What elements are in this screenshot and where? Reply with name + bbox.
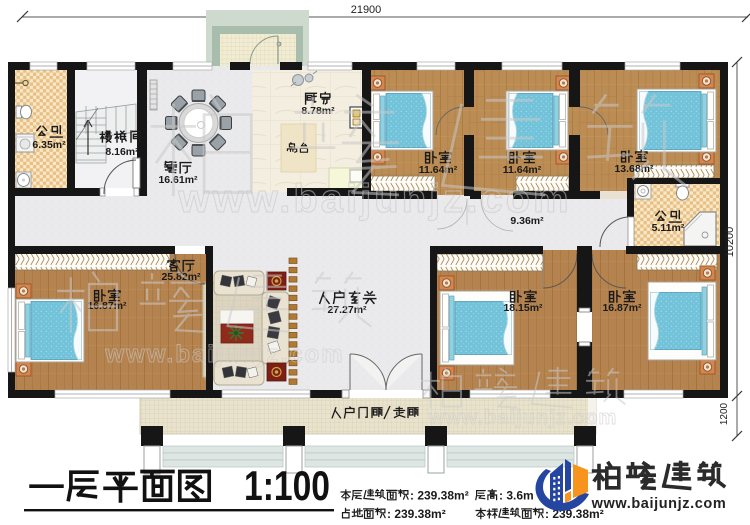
svg-text:www.baijunjz.com: www.baijunjz.com — [104, 341, 344, 368]
svg-text:6.35m²: 6.35m² — [32, 139, 66, 151]
svg-text:: 3.6m: : 3.6m — [499, 489, 534, 503]
svg-text:11.64m²: 11.64m² — [503, 164, 542, 176]
svg-text:8.16m²: 8.16m² — [105, 146, 139, 158]
svg-text:21900: 21900 — [351, 4, 382, 16]
svg-text:13.68m²: 13.68m² — [614, 163, 654, 175]
svg-text:11.64m²: 11.64m² — [419, 164, 458, 176]
svg-text:www.baijunjz.com: www.baijunjz.com — [428, 407, 618, 429]
svg-text:: 239.38m²: : 239.38m² — [410, 489, 469, 503]
svg-text:www.baijunjz.com: www.baijunjz.com — [591, 496, 727, 512]
svg-text:18.15m²: 18.15m² — [503, 302, 543, 314]
svg-text:10200: 10200 — [724, 227, 736, 258]
svg-text:16.87m²: 16.87m² — [602, 302, 642, 314]
svg-text:25.82m²: 25.82m² — [161, 271, 201, 283]
svg-text:1200: 1200 — [719, 402, 730, 425]
svg-text:1:100: 1:100 — [244, 462, 330, 509]
svg-text:www.baijunjz.com: www.baijunjz.com — [177, 177, 571, 221]
svg-text:: 239.38m²: : 239.38m² — [387, 507, 446, 521]
svg-text:5.11m²: 5.11m² — [652, 222, 685, 234]
